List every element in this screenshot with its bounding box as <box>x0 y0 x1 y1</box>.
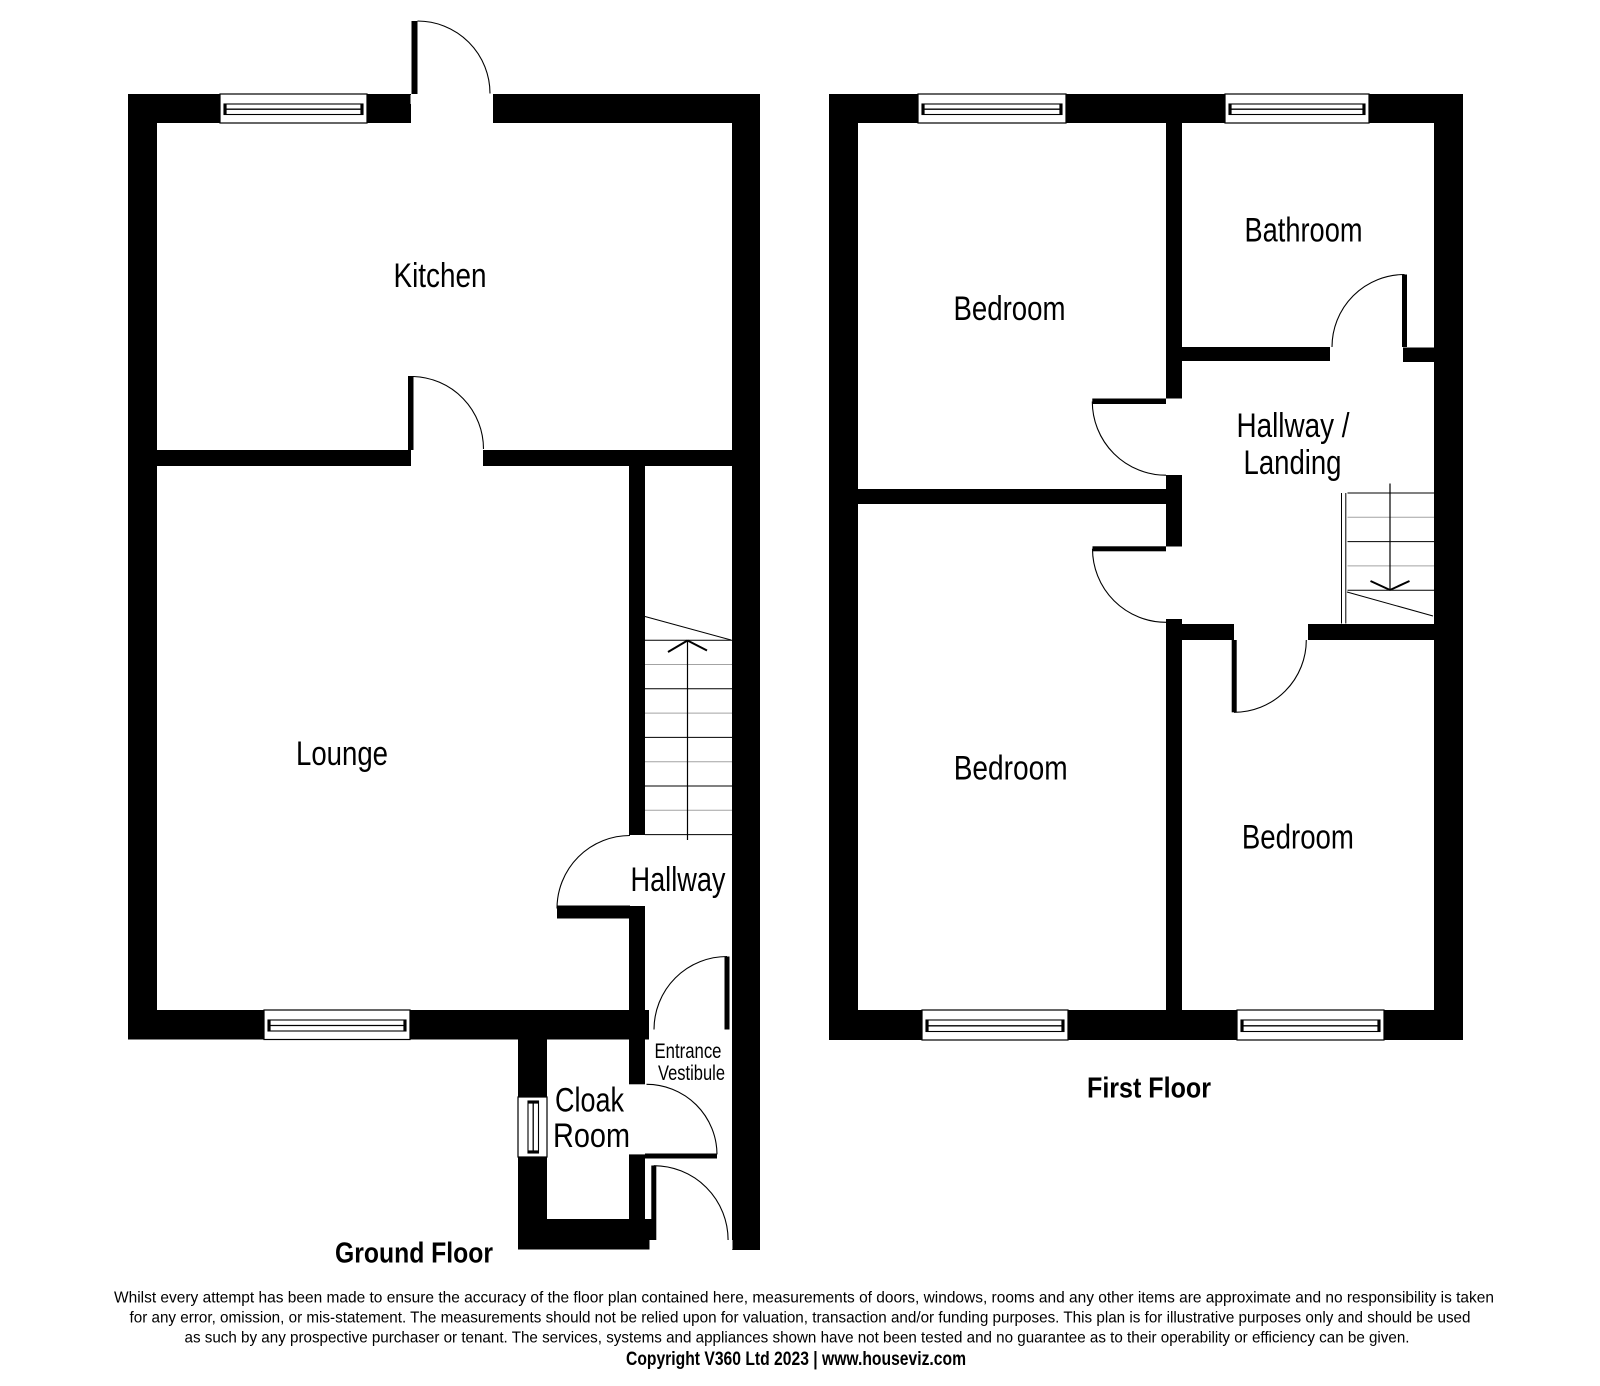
svg-text:Vestibule: Vestibule <box>658 1062 725 1085</box>
svg-text:First Floor: First Floor <box>1087 1072 1211 1104</box>
svg-text:Whilst every attempt has been: Whilst every attempt has been made to en… <box>114 1290 1494 1307</box>
svg-text:Bedroom: Bedroom <box>954 750 1068 788</box>
svg-text:Bedroom: Bedroom <box>1242 819 1354 857</box>
svg-text:Bedroom: Bedroom <box>954 290 1066 328</box>
svg-text:Entrance: Entrance <box>655 1040 722 1063</box>
svg-text:Room: Room <box>553 1117 630 1155</box>
svg-text:Hallway: Hallway <box>631 861 726 899</box>
svg-text:Hallway /: Hallway / <box>1237 407 1350 445</box>
svg-text:Ground Floor: Ground Floor <box>335 1238 493 1270</box>
svg-text:Lounge: Lounge <box>296 735 388 773</box>
svg-text:Landing: Landing <box>1244 444 1342 482</box>
svg-text:Bathroom: Bathroom <box>1245 212 1363 250</box>
svg-text:Copyright V360 Ltd 2023 | www.: Copyright V360 Ltd 2023 | www.houseviz.c… <box>626 1349 966 1370</box>
svg-text:Cloak: Cloak <box>555 1082 625 1120</box>
svg-text:Kitchen: Kitchen <box>394 257 487 295</box>
svg-text:as such by any prospective pur: as such by any prospective purchaser or … <box>185 1330 1410 1347</box>
svg-text:for any error, omission, or mi: for any error, omission, or mis-statemen… <box>130 1310 1471 1327</box>
